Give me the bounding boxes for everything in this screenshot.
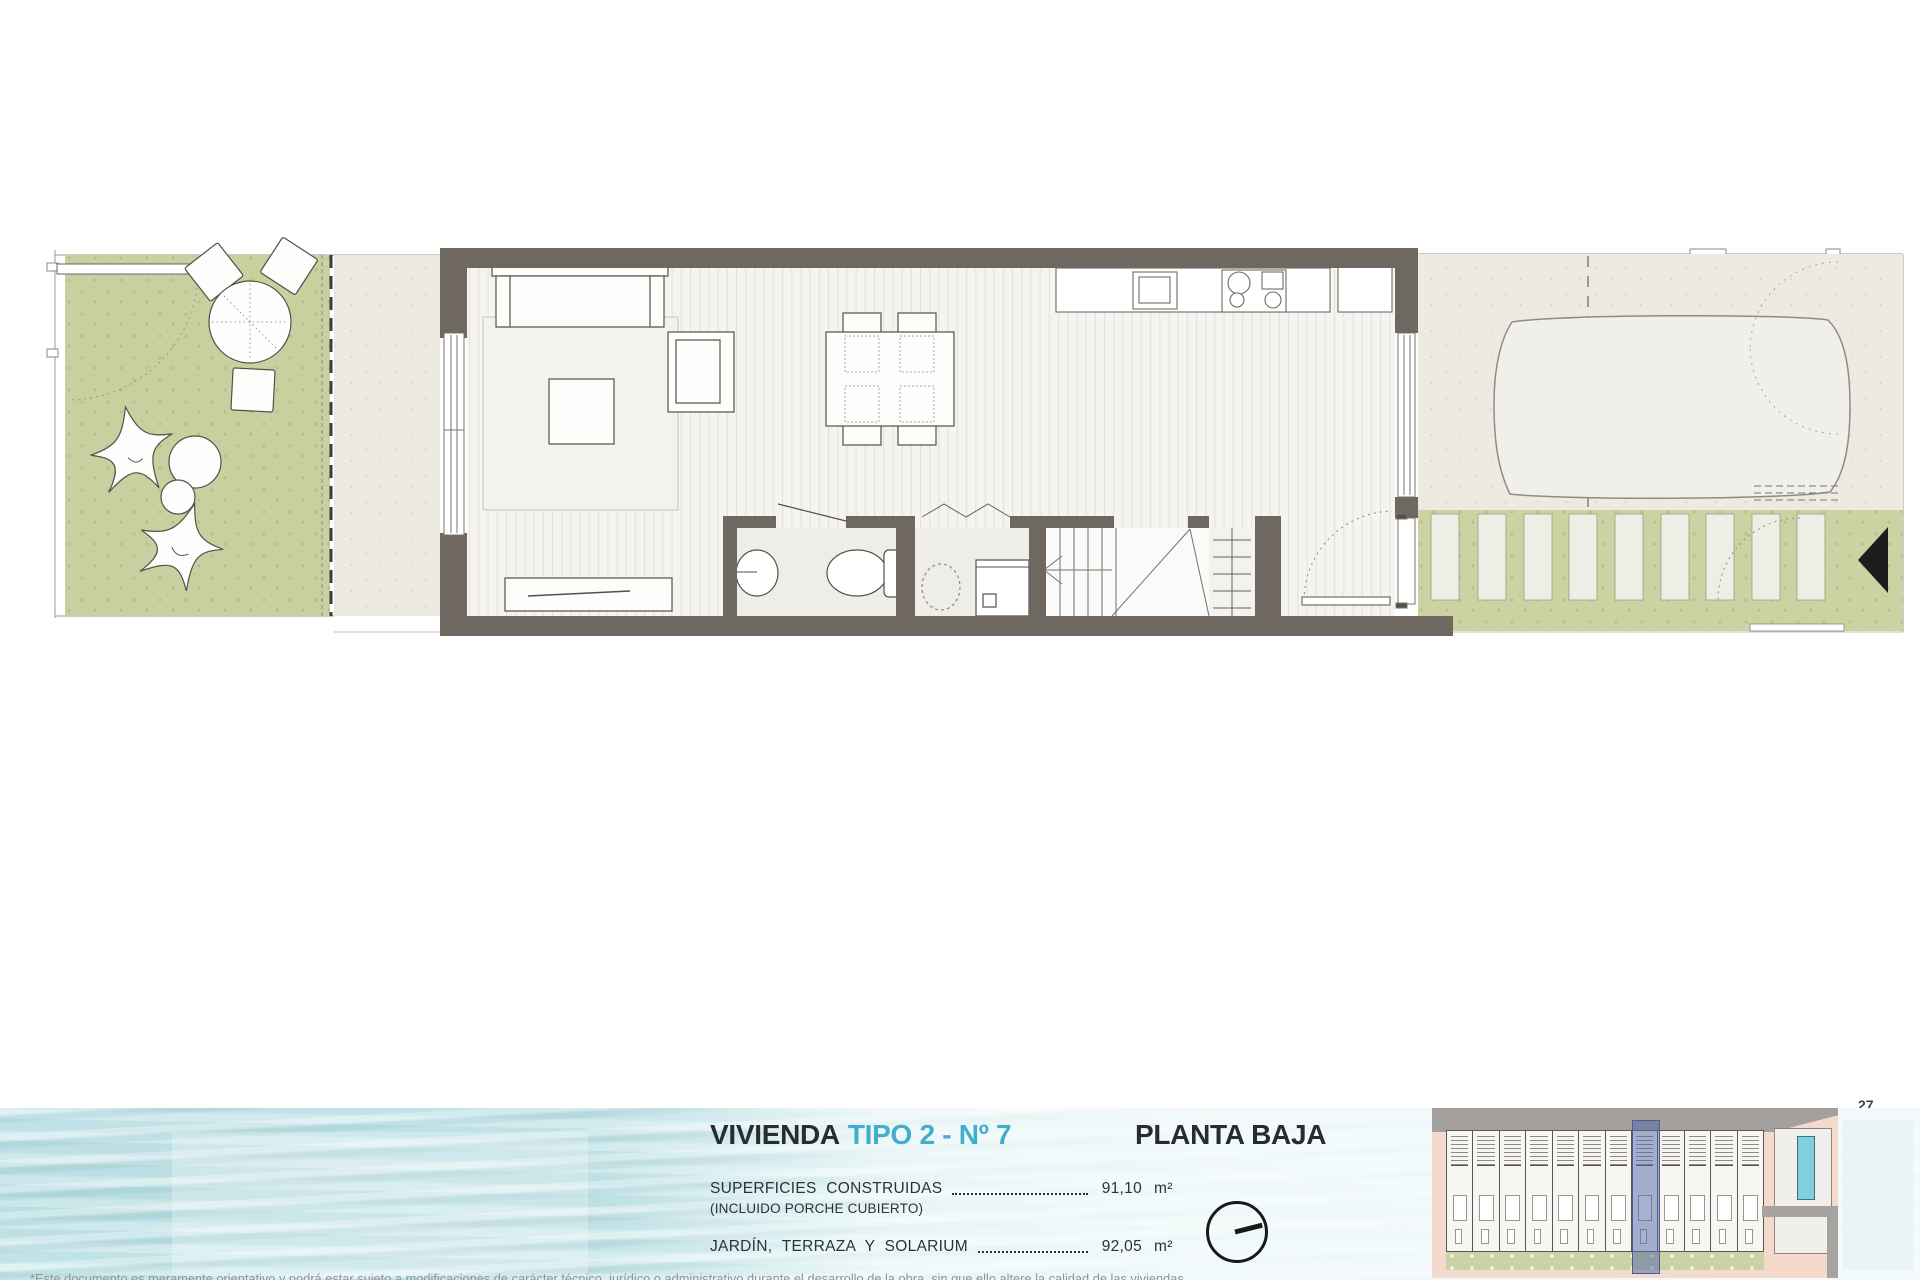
footer: VIVIENDATIPO 2 - Nº 7 PLANTA BAJA SUPERF… (0, 1108, 1920, 1280)
bathroom-sink (736, 550, 778, 596)
toilet (827, 550, 887, 596)
dining-chair (843, 425, 881, 445)
siteplan-highlight (1632, 1120, 1661, 1274)
area-table: SUPERFICIES CONSTRUIDAS 91,10 m² (INCLUI… (710, 1180, 1180, 1256)
dining-chair (843, 313, 881, 333)
dining-set (826, 313, 954, 445)
garden-area (57, 237, 330, 616)
siteplan-house (1526, 1166, 1551, 1251)
siteplan-parking (1583, 1133, 1600, 1166)
siteplan-unit (1737, 1130, 1764, 1252)
siteplan-unit (1446, 1130, 1472, 1252)
right-window (1398, 333, 1415, 497)
driveway-area (1418, 510, 1903, 631)
area-unit: m² (1154, 1238, 1180, 1256)
stairs-floor (1046, 528, 1209, 616)
north-arrow-icon (1206, 1201, 1268, 1263)
siteplan-unit (1684, 1130, 1710, 1252)
area-value: 92,05 (1096, 1238, 1142, 1256)
siteplan-unit (1657, 1130, 1683, 1252)
siteplan-path (1827, 1206, 1838, 1278)
dining-chair (898, 425, 936, 445)
siteplan-parking (1477, 1133, 1494, 1166)
left-sliding-door (444, 333, 464, 535)
siteplan-parking (1557, 1133, 1574, 1166)
right-terrace-door (1396, 514, 1415, 608)
siteplan-parking (1451, 1133, 1468, 1166)
siteplan-unit (1710, 1130, 1736, 1252)
sofa (492, 260, 668, 327)
house (440, 248, 1453, 636)
siteplan-unit (1605, 1130, 1631, 1252)
dotted-leader (952, 1193, 1088, 1195)
siteplan-parking (1530, 1133, 1547, 1166)
water-highlight-box (172, 1132, 588, 1278)
siteplan-house (1447, 1166, 1472, 1251)
footer-right-margin (1843, 1120, 1913, 1270)
siteplan-house (1606, 1166, 1631, 1251)
garden-gate (57, 264, 205, 274)
unit-title: VIVIENDATIPO 2 - Nº 7 (710, 1119, 1011, 1151)
area-row-garden: JARDÍN, TERRAZA Y SOLARIUM 92,05 m² (710, 1238, 1180, 1256)
siteplan-parking (1662, 1133, 1679, 1166)
fridge (1338, 266, 1392, 312)
compass-needle (1234, 1223, 1262, 1235)
area-sublabel: (INCLUIDO PORCHE CUBIERTO) (710, 1201, 1180, 1216)
unit-title-black: VIVIENDA (710, 1119, 840, 1150)
armchair (668, 332, 734, 412)
area-label: JARDÍN, TERRAZA Y SOLARIUM (710, 1238, 968, 1256)
siteplan-house (1473, 1166, 1498, 1251)
disclaimer-text: *Este documento es meramente orientativo… (30, 1271, 1290, 1280)
siteplan-units (1446, 1130, 1764, 1252)
siteplan-house (1500, 1166, 1525, 1251)
terrace-area (1418, 254, 1903, 510)
siteplan-parking (1715, 1133, 1732, 1166)
siteplan-house (1711, 1166, 1736, 1251)
kitchen-counter (1056, 268, 1330, 312)
siteplan-garden-strip (1446, 1252, 1764, 1270)
tv-unit (505, 578, 672, 611)
siteplan-unit (1552, 1130, 1578, 1252)
siteplan-parking (1610, 1133, 1627, 1166)
area-label: SUPERFICIES CONSTRUIDAS (710, 1180, 942, 1198)
siteplan-unit (1499, 1130, 1525, 1252)
siteplan-parking (1742, 1133, 1759, 1166)
plan-level-label: PLANTA BAJA (1135, 1119, 1326, 1151)
siteplan-parking (1504, 1133, 1521, 1166)
pavers (1431, 514, 1825, 600)
siteplan-house (1579, 1166, 1604, 1251)
kitchen (1056, 266, 1392, 312)
siteplan-house (1738, 1166, 1763, 1251)
coffee-table (549, 379, 614, 444)
siteplan-house (1553, 1166, 1578, 1251)
siteplan-house (1685, 1166, 1710, 1251)
siteplan-unit (1525, 1130, 1551, 1252)
brochure-page: 27 VIVIENDATIPO 2 - Nº 7 PLANTA BAJA SUP… (0, 0, 1920, 1280)
entrance-door-leaf (1302, 597, 1390, 605)
siteplan-thumbnail (1432, 1108, 1838, 1278)
area-row-built: SUPERFICIES CONSTRUIDAS 91,10 m² (710, 1180, 1180, 1198)
siteplan-unit (1472, 1130, 1498, 1252)
porch-area (334, 255, 440, 616)
dining-chair (898, 313, 936, 333)
area-value: 91,10 (1096, 1180, 1142, 1198)
siteplan-parking (1689, 1133, 1706, 1166)
siteplan-house (1658, 1166, 1683, 1251)
area-unit: m² (1154, 1180, 1180, 1198)
dotted-leader (978, 1251, 1088, 1253)
floor-plan-drawing (0, 0, 1920, 760)
siteplan-pool (1797, 1136, 1815, 1200)
siteplan-unit (1578, 1130, 1604, 1252)
car-space (1494, 316, 1850, 499)
unit-title-accent: TIPO 2 - Nº 7 (848, 1119, 1011, 1150)
